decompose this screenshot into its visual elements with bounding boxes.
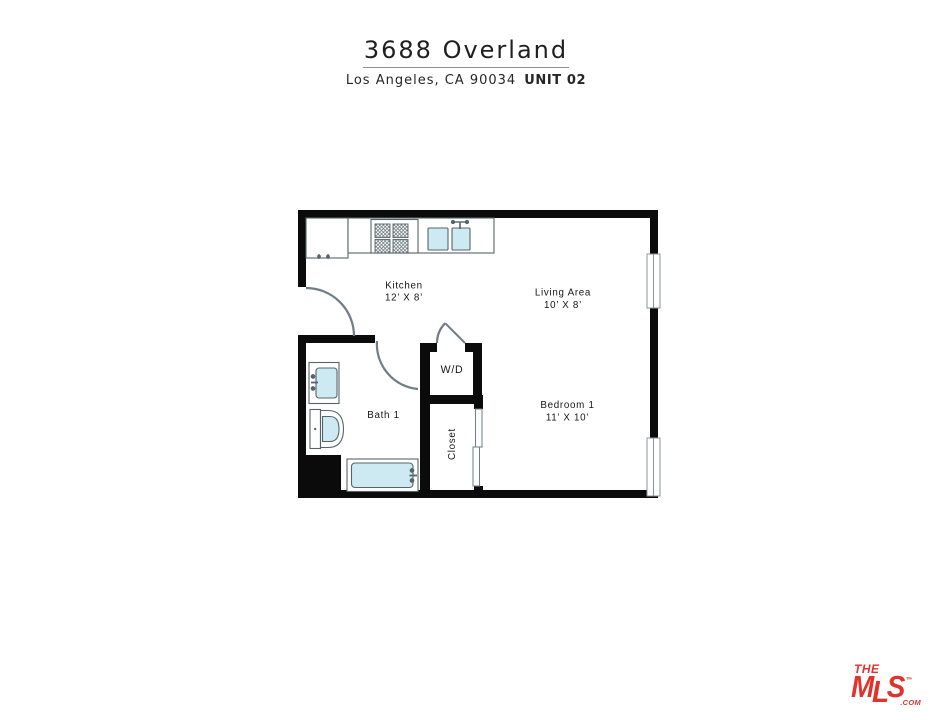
- toilet-flush-dot: [314, 428, 316, 430]
- wall-bath-top: [298, 335, 375, 343]
- structural-block: [298, 455, 341, 498]
- vanity-basin: [316, 368, 337, 398]
- closet-sliding-doors: [473, 409, 482, 486]
- mls-letter-l: L: [872, 674, 887, 709]
- window-living: [647, 254, 660, 308]
- plan-subtitle: Los Angeles, CA 90034UNIT 02: [0, 73, 932, 88]
- closet-door-panel: [473, 447, 480, 486]
- refrigerator: [306, 218, 348, 258]
- wall-top: [298, 210, 658, 218]
- closet-door-top-stub: [474, 395, 483, 409]
- kitchen-sink-basin: [428, 228, 448, 250]
- kitchen-dims: 12’ X 8’: [385, 293, 423, 304]
- kitchen-fixtures: [306, 218, 494, 259]
- closet-label: Closet: [447, 428, 458, 460]
- kitchen-sink-basin: [452, 228, 470, 250]
- kitchen-label: Kitchen: [385, 281, 423, 292]
- stove-burner: [375, 240, 390, 254]
- bath-label: Bath 1: [367, 410, 400, 421]
- stove-burner: [375, 224, 390, 238]
- title-divider: [363, 67, 569, 68]
- mls-letter-m: M: [851, 669, 872, 704]
- wall-wd-right: [473, 343, 482, 404]
- mls-logo: THE MLS™ .COM: [851, 663, 921, 707]
- living-dims: 10’ X 8’: [544, 300, 582, 311]
- floor-plan: Kitchen 12’ X 8’ Living Area 10’ X 8’ W/…: [290, 205, 665, 505]
- wall-left-upper: [298, 210, 306, 287]
- closet-door-panel: [476, 409, 483, 447]
- wd-label: W/D: [441, 364, 464, 376]
- page-title: 3688 Overland: [0, 38, 932, 63]
- wd-door-arc: [437, 323, 445, 343]
- stove-burner: [393, 240, 408, 254]
- mls-letter-s: S: [887, 669, 903, 704]
- wall-wd-bottom: [420, 395, 482, 404]
- stove-burner: [393, 224, 408, 238]
- toilet-bowl-inner: [323, 417, 340, 442]
- wall-bath-closet: [420, 343, 430, 490]
- wd-left-jamb: [420, 343, 437, 352]
- living-label: Living Area: [535, 288, 591, 299]
- bedroom-dims: 11’ X 10’: [546, 413, 589, 424]
- wd-door-leaf: [445, 323, 465, 343]
- entry-door-arc: [306, 288, 354, 336]
- window-bedroom: [647, 438, 660, 496]
- plan-unit-number: UNIT 02: [524, 73, 586, 88]
- trademark-symbol: ™: [906, 677, 912, 684]
- kitchen-counter: [348, 218, 494, 253]
- bedroom-label: Bedroom 1: [540, 400, 594, 411]
- bathtub-inner: [352, 463, 414, 488]
- plan-address: Los Angeles, CA 90034: [346, 73, 516, 88]
- bath-door-arc: [377, 341, 418, 389]
- closet-door-bottom-stub: [474, 486, 483, 498]
- mls-logo-mls: MLS™: [851, 675, 914, 700]
- plan-header: 3688 Overland Los Angeles, CA 90034UNIT …: [0, 38, 932, 88]
